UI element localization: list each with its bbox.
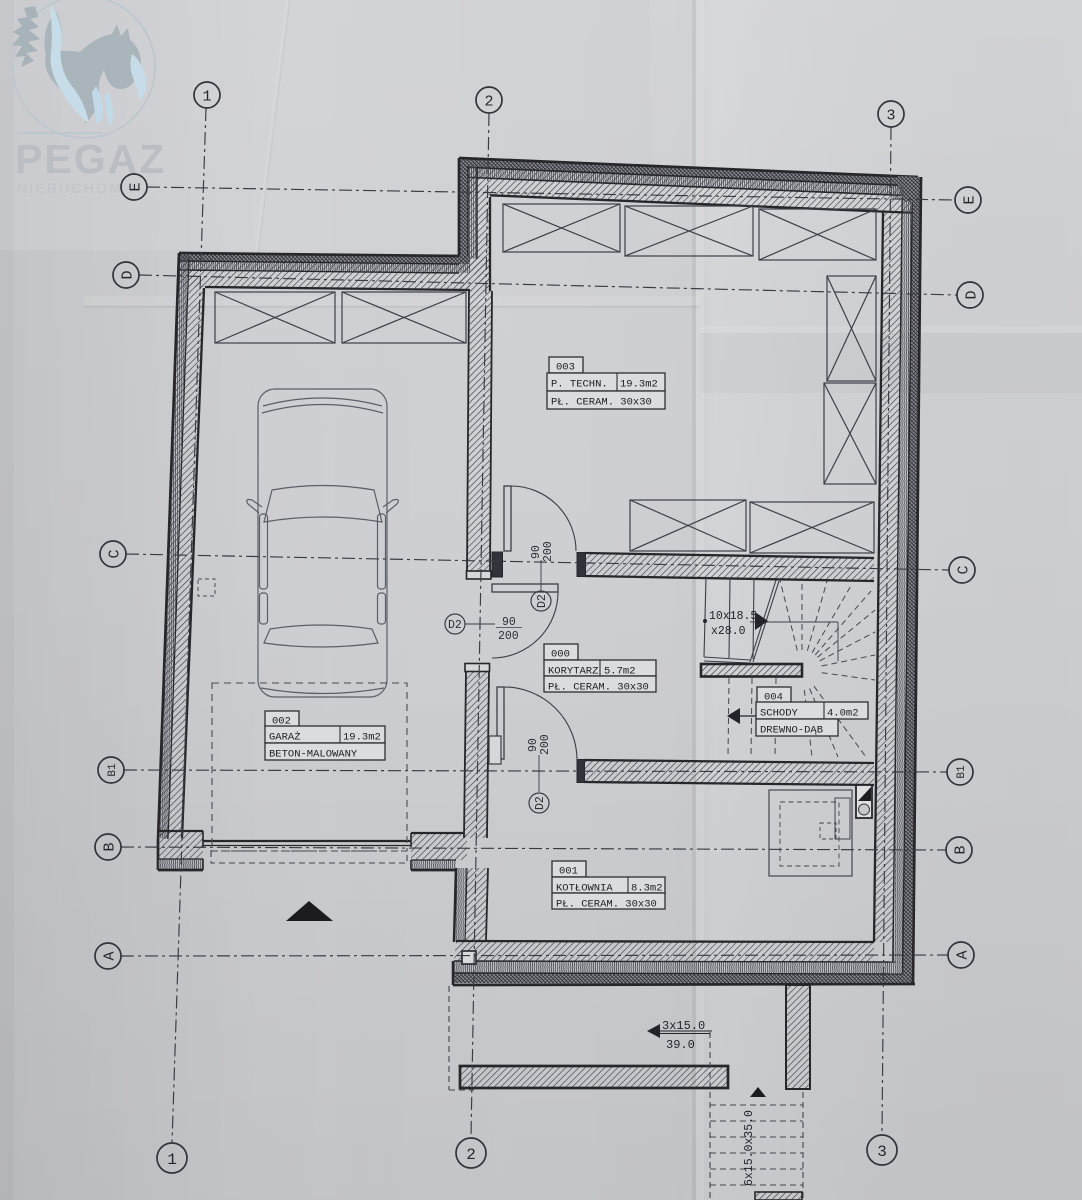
svg-text:000: 000	[551, 649, 570, 661]
svg-text:B1: B1	[107, 763, 119, 777]
svg-text:A: A	[101, 951, 118, 960]
svg-text:P. TECHN.: P. TECHN.	[551, 379, 608, 391]
svg-text:6x15.0x35.0: 6x15.0x35.0	[743, 1110, 756, 1186]
svg-text:x28.0: x28.0	[711, 625, 746, 638]
svg-text:B: B	[101, 842, 118, 851]
svg-text:PŁ. CERAM. 30x30: PŁ. CERAM. 30x30	[556, 899, 657, 911]
svg-text:90: 90	[502, 616, 516, 629]
svg-text:C: C	[955, 565, 972, 574]
svg-text:1: 1	[167, 1151, 177, 1169]
svg-text:3: 3	[886, 107, 895, 124]
svg-text:2: 2	[484, 93, 493, 110]
svg-text:PŁ. CERAM. 30x30: PŁ. CERAM. 30x30	[548, 682, 649, 694]
svg-text:003: 003	[556, 362, 575, 374]
svg-text:DREWNO-DĄB: DREWNO-DĄB	[760, 725, 823, 737]
svg-text:PEGAZ: PEGAZ	[15, 136, 166, 182]
svg-text:39.0: 39.0	[666, 1038, 695, 1052]
svg-text:3: 3	[877, 1143, 887, 1161]
svg-text:D2: D2	[534, 796, 547, 810]
svg-text:1: 1	[202, 88, 211, 105]
svg-text:10x18.5: 10x18.5	[709, 610, 757, 623]
svg-text:SCHODY: SCHODY	[760, 708, 799, 720]
svg-text:200: 200	[498, 630, 519, 643]
svg-text:BETON-MALOWANY: BETON-MALOWANY	[269, 749, 358, 761]
svg-text:4.0m2: 4.0m2	[827, 708, 859, 720]
svg-text:D: D	[119, 270, 136, 279]
svg-text:E: E	[961, 195, 978, 204]
svg-text:D2: D2	[536, 594, 549, 608]
svg-text:D: D	[963, 290, 980, 299]
svg-text:2: 2	[466, 1146, 476, 1164]
svg-text:19.3m2: 19.3m2	[620, 379, 658, 391]
svg-text:200: 200	[539, 734, 552, 755]
svg-text:B1: B1	[956, 765, 968, 779]
svg-text:200: 200	[542, 541, 555, 562]
svg-text:E: E	[127, 182, 144, 191]
svg-text:A: A	[954, 950, 971, 959]
svg-text:GARAŻ: GARAŻ	[269, 731, 301, 744]
svg-text:19.3m2: 19.3m2	[343, 732, 381, 744]
svg-text:B: B	[952, 845, 969, 854]
svg-text:001: 001	[559, 866, 578, 878]
svg-text:PŁ. CERAM. 30x30: PŁ. CERAM. 30x30	[551, 397, 652, 409]
svg-text:C: C	[106, 549, 123, 558]
svg-text:D2: D2	[448, 619, 462, 632]
